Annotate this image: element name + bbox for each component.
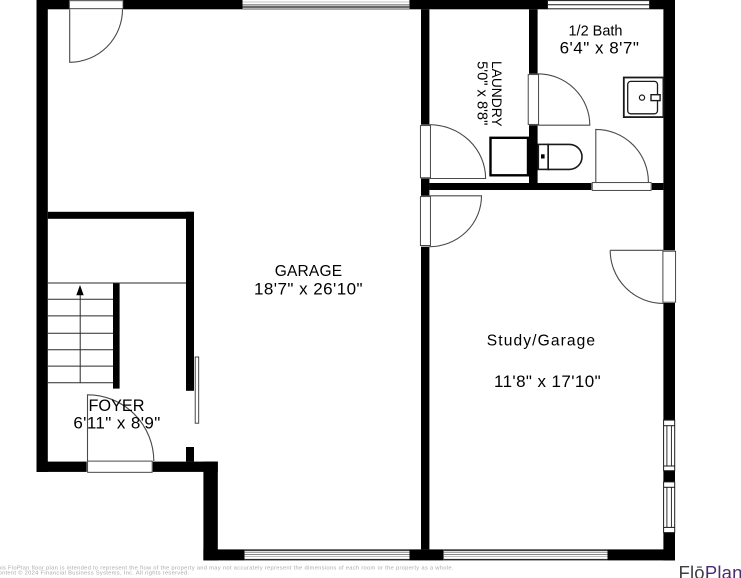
svg-text:Content © 2024 Financial Busin: Content © 2024 Financial Business System… <box>0 570 189 577</box>
svg-text:6'11" x 8'9": 6'11" x 8'9" <box>73 414 160 433</box>
svg-text:1/2 Bath: 1/2 Bath <box>568 24 622 40</box>
svg-text:GARAGE: GARAGE <box>275 263 343 280</box>
svg-text:FlōPlan: FlōPlan <box>679 562 741 578</box>
svg-text:11'8" x 17'10": 11'8" x 17'10" <box>494 372 601 391</box>
svg-text:18'7" x 26'10": 18'7" x 26'10" <box>254 280 363 299</box>
svg-text:LAUNDRY: LAUNDRY <box>489 61 504 127</box>
svg-text:6'4" x 8'7": 6'4" x 8'7" <box>560 39 640 58</box>
svg-text:5'0" x 8'8": 5'0" x 8'8" <box>474 61 490 125</box>
svg-text:Study/Garage: Study/Garage <box>487 333 596 350</box>
svg-text:FOYER: FOYER <box>88 397 144 415</box>
